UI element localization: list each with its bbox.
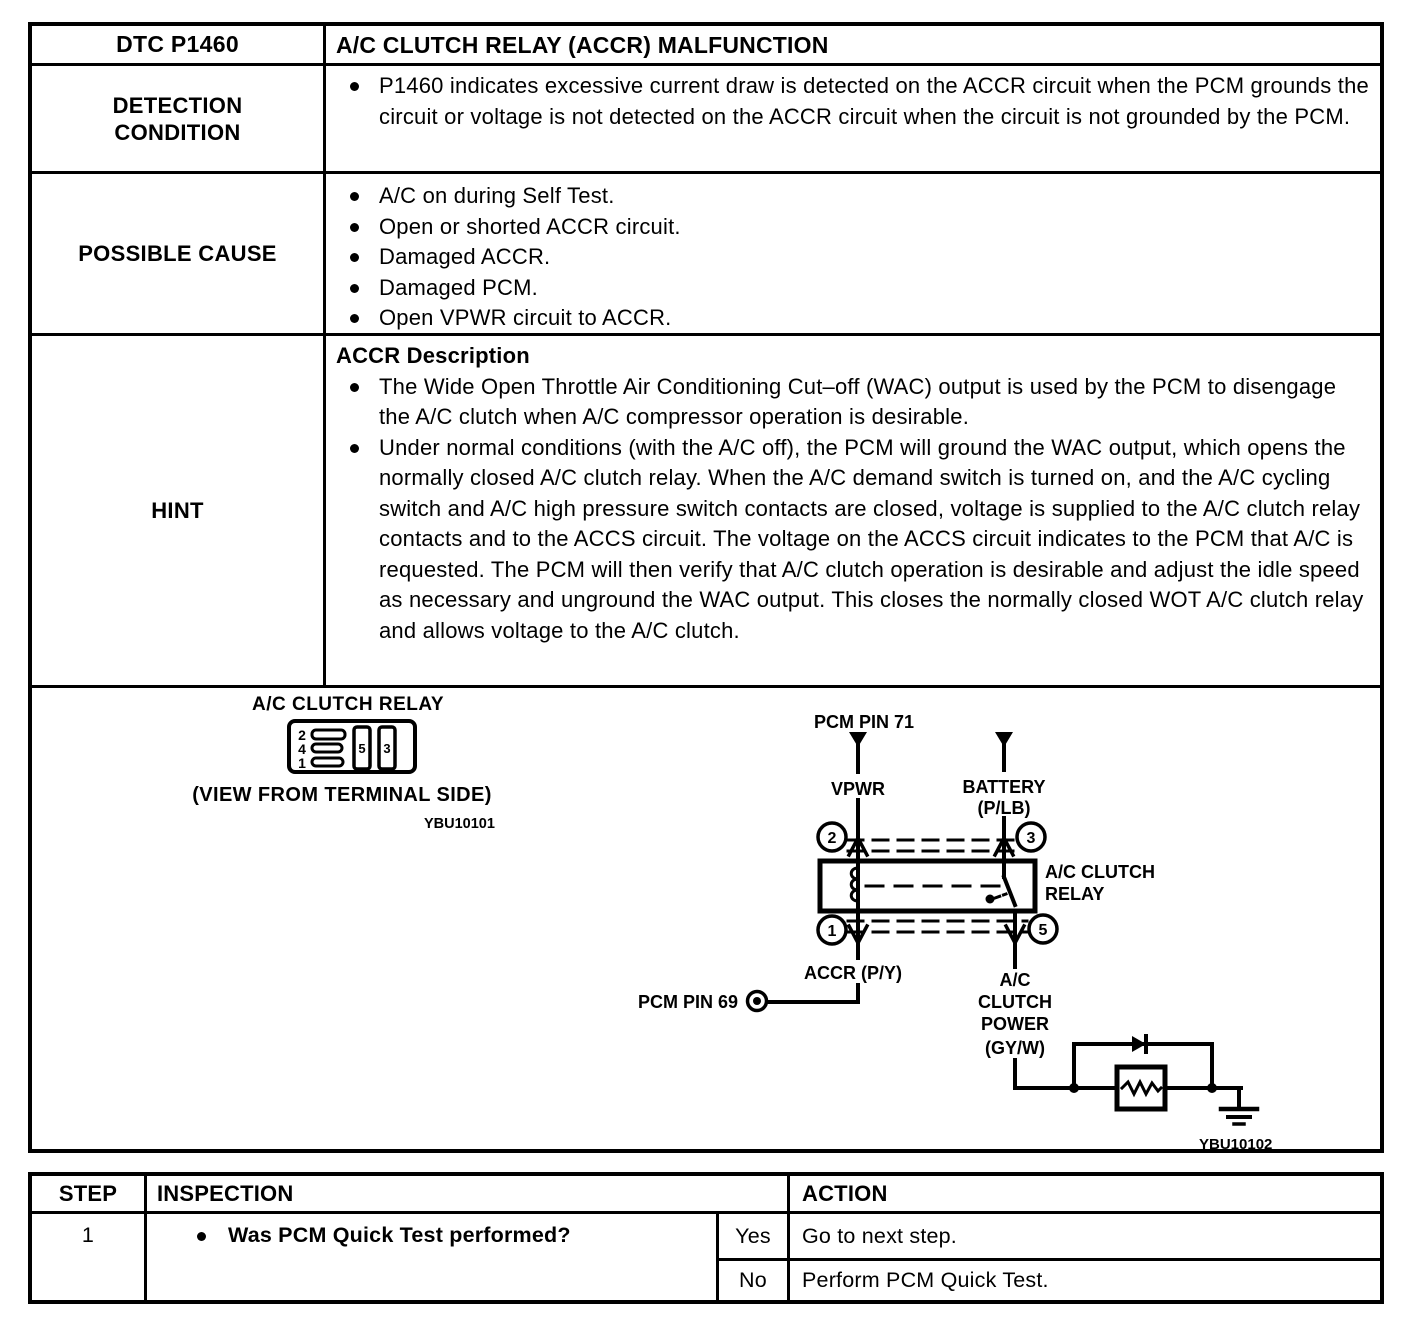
detection-condition-label: DETECTION CONDITION: [32, 66, 326, 171]
slot-number: 3: [383, 741, 390, 756]
possible-cause-item: Damaged ACCR.: [379, 242, 1370, 273]
list-item: The Wide Open Throttle Air Conditioning …: [336, 372, 1370, 433]
accr-description-heading: ACCR Description: [336, 341, 1370, 372]
figure-id-label: YBU10101: [424, 816, 495, 832]
answer-yes-label: Yes: [719, 1214, 790, 1258]
inspection-header: INSPECTION: [147, 1176, 790, 1214]
relay-terminal-diagram: A/C CLUTCH RELAY 2 4 1 5 3 (VIEW FROM TE…: [192, 694, 495, 832]
dtc-code: DTC P1460: [32, 26, 326, 63]
list-item: Damaged ACCR.: [336, 242, 1370, 273]
relay-contact-dot: [986, 895, 995, 904]
step-number: 1: [32, 1214, 147, 1300]
list-item: Open or shorted ACCR circuit.: [336, 212, 1370, 243]
detection-condition-row: DETECTION CONDITION P1460 indicates exce…: [32, 66, 1380, 174]
possible-cause-item: Damaged PCM.: [379, 273, 1370, 304]
detection-condition-text: P1460 indicates excessive current draw i…: [379, 71, 1370, 132]
relay-view-title: A/C CLUTCH RELAY: [252, 694, 444, 715]
wiring-figure-cell: A/C CLUTCH RELAY 2 4 1 5 3 (VIEW FROM TE…: [32, 688, 1380, 1149]
inspection-steps-table: STEP INSPECTION ACTION 1 Was PCM Quick T…: [28, 1172, 1384, 1304]
inspection-question: Was PCM Quick Test performed?: [228, 1223, 571, 1248]
terminal-number: 1: [298, 755, 306, 771]
hint-item: The Wide Open Throttle Air Conditioning …: [379, 372, 1370, 433]
action-yes-text: Go to next step.: [790, 1214, 1380, 1258]
clutch-power-label: POWER: [981, 1014, 1049, 1034]
detection-condition-body: P1460 indicates excessive current draw i…: [326, 66, 1380, 171]
junction-dot: [1069, 1083, 1079, 1093]
diode-icon: [1132, 1036, 1146, 1052]
action-no-text: Perform PCM Quick Test.: [790, 1258, 1380, 1300]
vpwr-label: VPWR: [831, 779, 885, 799]
possible-cause-row: POSSIBLE CAUSE A/C on during Self Test. …: [32, 174, 1380, 336]
pcm-pin-69-label: PCM PIN 69: [638, 992, 738, 1012]
relay-label-line2: RELAY: [1045, 884, 1104, 904]
junction-dot: [1207, 1083, 1217, 1093]
list-item: Damaged PCM.: [336, 273, 1370, 304]
pin-number: 5: [1039, 922, 1048, 939]
slot-number: 5: [358, 741, 365, 756]
answer-no-label: No: [719, 1258, 790, 1300]
dtc-title-row: DTC P1460 A/C CLUTCH RELAY (ACCR) MALFUN…: [32, 26, 1380, 66]
bullet-icon: [350, 82, 359, 91]
dtc-malfunction-title: A/C CLUTCH RELAY (ACCR) MALFUNCTION: [326, 26, 1380, 63]
clutch-coil-box: [1117, 1067, 1165, 1109]
relay-contact-arm: [1004, 877, 1015, 905]
terminal-blade: [312, 730, 345, 739]
bullet-icon: [350, 383, 359, 392]
terminal-blade: [312, 758, 343, 766]
pin-number: 1: [828, 923, 837, 940]
terminal-blade: [312, 744, 342, 752]
list-item: P1460 indicates excessive current draw i…: [336, 71, 1370, 132]
hint-row: HINT ACCR Description The Wide Open Thro…: [32, 336, 1380, 688]
clutch-power-label: A/C: [1000, 970, 1031, 990]
bullet-icon: [197, 1232, 206, 1241]
hint-item: Under normal conditions (with the A/C of…: [379, 433, 1370, 647]
list-item: Under normal conditions (with the A/C of…: [336, 433, 1370, 647]
figure-id-label: YBU10102: [1199, 1136, 1272, 1149]
hint-body: ACCR Description The Wide Open Throttle …: [326, 336, 1380, 685]
dtc-table: DTC P1460 A/C CLUTCH RELAY (ACCR) MALFUN…: [28, 22, 1384, 1153]
wiring-diagram: A/C CLUTCH RELAY 2 4 1 5 3 (VIEW FROM TE…: [32, 688, 1380, 1149]
bullet-icon: [350, 314, 359, 323]
step-header: STEP: [32, 1176, 147, 1214]
detection-label-line2: CONDITION: [114, 119, 240, 146]
service-manual-page: DTC P1460 A/C CLUTCH RELAY (ACCR) MALFUN…: [0, 0, 1408, 1318]
possible-cause-item: A/C on during Self Test.: [379, 181, 1370, 212]
list-item: Open VPWR circuit to ACCR.: [336, 303, 1370, 334]
pin-number: 2: [828, 830, 837, 847]
possible-cause-item: Open or shorted ACCR circuit.: [379, 212, 1370, 243]
wiring-schematic: PCM PIN 71 VPWR BATTERY (P/LB) 2 3: [638, 712, 1272, 1149]
possible-cause-body: A/C on during Self Test. Open or shorted…: [326, 174, 1380, 333]
relay-view-caption: (VIEW FROM TERMINAL SIDE): [192, 784, 492, 806]
clutch-power-label: (GY/W): [985, 1038, 1045, 1058]
action-header: ACTION: [790, 1176, 1380, 1214]
bullet-icon: [350, 444, 359, 453]
bullet-icon: [350, 192, 359, 201]
relay-label-line1: A/C CLUTCH: [1045, 862, 1155, 882]
bullet-icon: [350, 284, 359, 293]
possible-cause-item: Open VPWR circuit to ACCR.: [379, 303, 1370, 334]
pcm-pin-71-label: PCM PIN 71: [814, 712, 914, 732]
relay-contact-dash: [995, 894, 1006, 898]
bullet-icon: [350, 253, 359, 262]
detection-label-line1: DETECTION: [113, 92, 243, 119]
pcm-pin-symbol-dot: [753, 997, 761, 1005]
list-item: A/C on during Self Test.: [336, 181, 1370, 212]
battery-wire-color-label: (P/LB): [978, 798, 1031, 818]
possible-cause-label: POSSIBLE CAUSE: [32, 174, 326, 333]
pin-number: 3: [1027, 830, 1036, 847]
battery-label: BATTERY: [963, 777, 1046, 797]
clutch-power-label: CLUTCH: [978, 992, 1052, 1012]
bullet-icon: [350, 223, 359, 232]
hint-label: HINT: [32, 336, 326, 685]
accr-wire-label: ACCR (P/Y): [804, 963, 902, 983]
inspection-question-cell: Was PCM Quick Test performed?: [147, 1214, 719, 1300]
